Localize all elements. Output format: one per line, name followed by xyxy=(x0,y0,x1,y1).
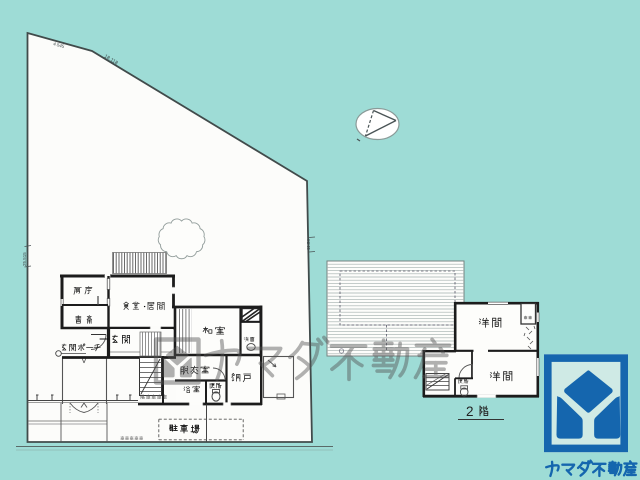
svg-text:2: 2 xyxy=(466,404,474,419)
svg-text:25.515: 25.515 xyxy=(22,252,27,266)
svg-text:11.34: 11.34 xyxy=(306,239,311,250)
